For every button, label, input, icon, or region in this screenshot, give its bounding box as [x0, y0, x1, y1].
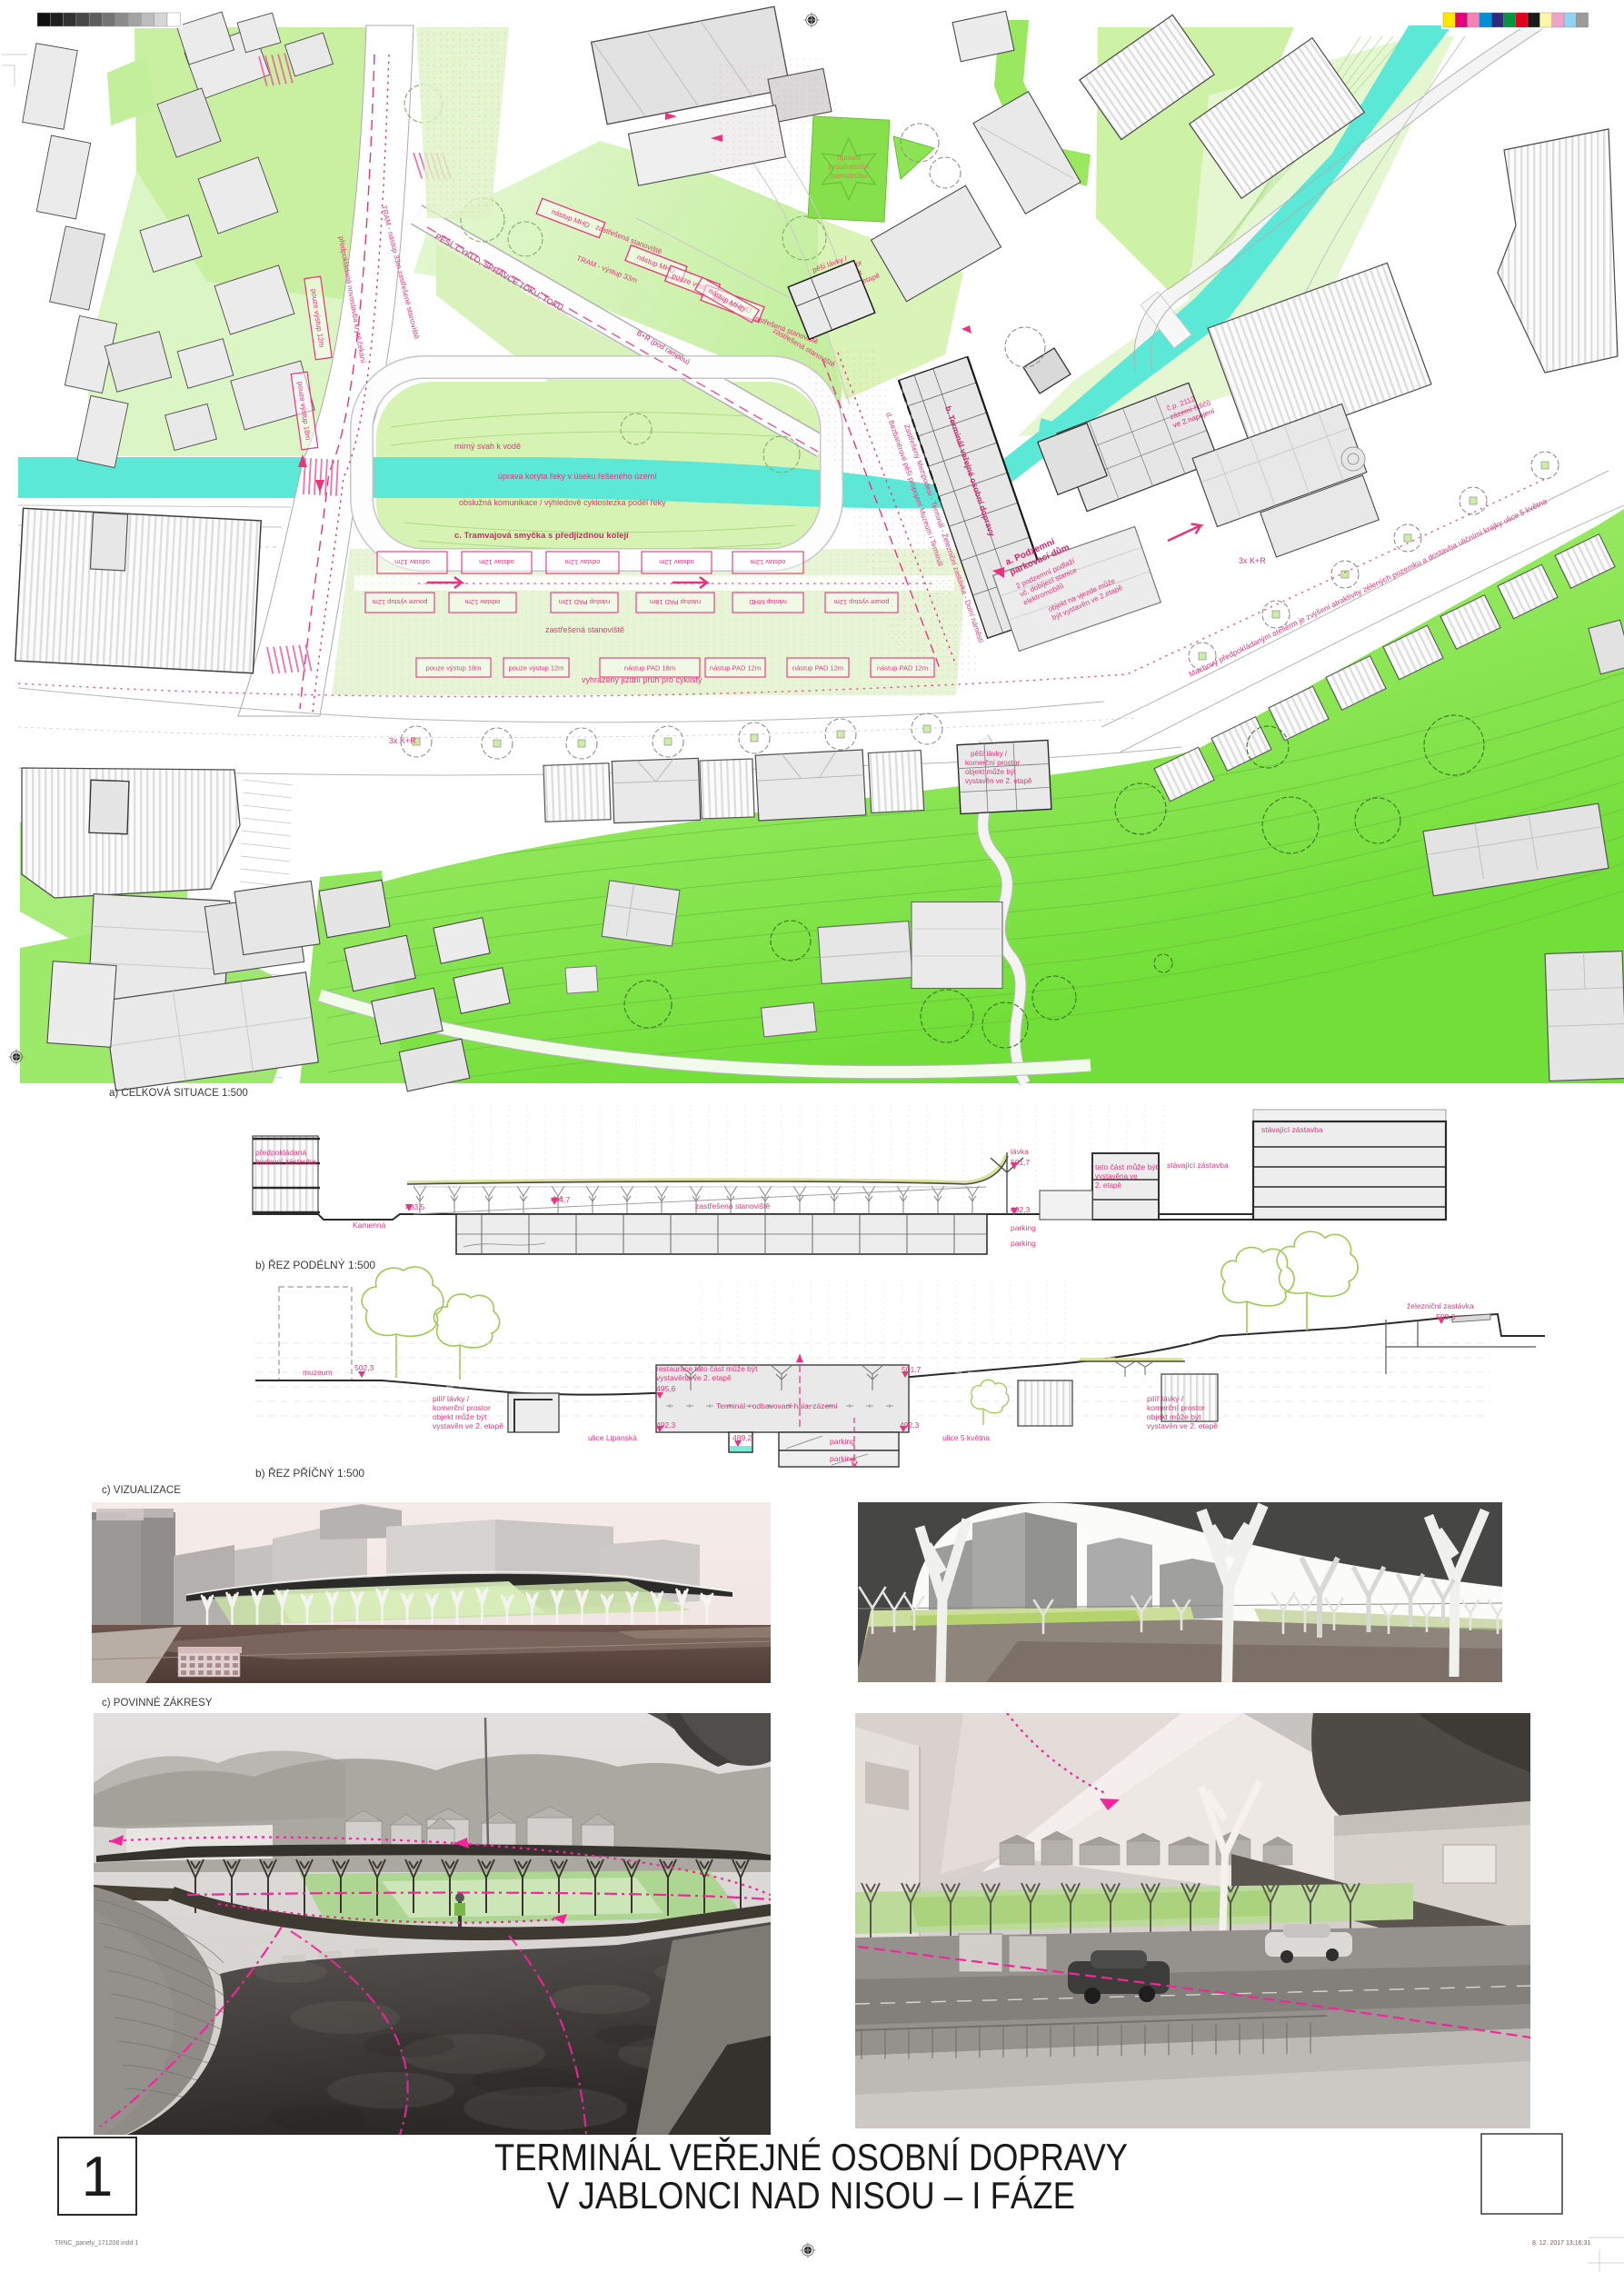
svg-text:parking: parking — [1011, 1223, 1036, 1232]
svg-text:ulice 5 května: ulice 5 května — [942, 1433, 990, 1442]
svg-text:3x K+R: 3x K+R — [389, 736, 416, 745]
svg-text:pouze výstup 12m: pouze výstup 12m — [509, 663, 564, 672]
svg-text:pilíř lávky /: pilíř lávky / — [433, 1394, 470, 1403]
svg-text:nástup PAD 18m: nástup PAD 18m — [624, 663, 675, 672]
svg-text:komerční prostor: komerční prostor — [1147, 1403, 1205, 1412]
svg-text:budoucí zástavba: budoucí zástavba — [255, 1157, 316, 1166]
svg-text:pouze výstup 12m: pouze výstup 12m — [373, 598, 428, 606]
svg-text:objekt může být: objekt může být — [433, 1412, 487, 1421]
svg-text:V JABLONCI NAD NISOU – I FÁZE: V JABLONCI NAD NISOU – I FÁZE — [547, 2174, 1075, 2217]
svg-text:objekt může být: objekt může být — [965, 768, 1017, 776]
svg-text:509,3: 509,3 — [1436, 1312, 1456, 1321]
svg-text:3x K+R: 3x K+R — [1239, 556, 1266, 565]
svg-text:památníku: památníku — [831, 171, 867, 180]
svg-text:odstav 12m: odstav 12m — [394, 558, 430, 566]
svg-text:komerční prostor: komerční prostor — [965, 759, 1020, 767]
svg-text:pilíř lávky /: pilíř lávky / — [1147, 1394, 1184, 1403]
svg-text:parking: parking — [830, 1437, 855, 1446]
svg-text:c) VIZUALIZACE: c) VIZUALIZACE — [102, 1485, 181, 1496]
svg-text:2. etapě: 2. etapě — [1095, 1181, 1121, 1190]
svg-text:odstav 12m: odstav 12m — [659, 558, 694, 566]
svg-text:vystavěna ve: vystavěna ve — [1095, 1172, 1138, 1181]
svg-text:úprava koryta řeky v úseku řeš: úprava koryta řeky v úseku řešeného územ… — [498, 472, 657, 481]
svg-text:úprava: úprava — [837, 153, 861, 162]
svg-text:odstav 12m: odstav 12m — [751, 558, 786, 566]
svg-text:odstav 12m: odstav 12m — [465, 598, 501, 606]
svg-text:zastřešená stanoviště: zastřešená stanoviště — [695, 1201, 770, 1211]
svg-text:vystavěn ve 2. etapě: vystavěn ve 2. etapě — [1147, 1421, 1218, 1430]
svg-text:nástup PAD 12m: nástup PAD 12m — [710, 663, 761, 672]
svg-text:c) POVINNÉ ZÁKRESY: c) POVINNÉ ZÁKRESY — [102, 1697, 213, 1709]
svg-text:odstav 12m: odstav 12m — [479, 558, 514, 566]
svg-text:vystavěn ve 2. etapě: vystavěn ve 2. etapě — [965, 777, 1032, 785]
svg-text:Terminál - odbavovací hala, zá: Terminál - odbavovací hala, zázemí — [716, 1401, 838, 1410]
svg-text:ulice Lipanská: ulice Lipanská — [588, 1433, 637, 1442]
svg-text:zastřešená stanoviště: zastřešená stanoviště — [545, 625, 624, 634]
svg-text:prostranství: prostranství — [829, 162, 870, 171]
svg-text:vystavěna ve 2. etapě: vystavěna ve 2. etapě — [656, 1373, 732, 1382]
svg-text:TRNC_panely_171208.indd 1: TRNC_panely_171208.indd 1 — [55, 2240, 138, 2247]
svg-text:8. 12. 2017 13:16:31: 8. 12. 2017 13:16:31 — [1532, 2240, 1590, 2247]
svg-text:parking: parking — [1011, 1239, 1036, 1248]
svg-text:lávka: lávka — [1011, 1147, 1029, 1156]
svg-text:stávající zástavba: stávající zástavba — [1261, 1125, 1323, 1134]
svg-text:Kamenná: Kamenná — [353, 1221, 386, 1230]
svg-text:pouze výstup 18m: pouze výstup 18m — [426, 663, 482, 672]
svg-text:pěší lávky /: pěší lávky / — [971, 750, 1008, 758]
svg-text:c. Tramvajová smyčka s předjíz: c. Tramvajová smyčka s předjízdnou kolej… — [454, 531, 629, 541]
svg-text:495,6: 495,6 — [656, 1384, 676, 1393]
svg-text:nástup PAD 18m: nástup PAD 18m — [650, 598, 701, 606]
svg-text:b) ŘEZ PODÉLNÝ 1:500: b) ŘEZ PODÉLNÝ 1:500 — [255, 1258, 375, 1271]
svg-text:tato část může být: tato část může být — [1095, 1162, 1159, 1171]
svg-text:vyhrazený jízdní pruh pro cykl: vyhrazený jízdní pruh pro cyklisty — [582, 675, 702, 684]
svg-text:TERMINÁL VEŘEJNÉ OSOBNÍ DOPRAV: TERMINÁL VEŘEJNÉ OSOBNÍ DOPRAVY — [494, 2136, 1128, 2178]
svg-text:nástup MHD: nástup MHD — [749, 598, 787, 606]
svg-text:restaurace tato část může být: restaurace tato část může být — [656, 1364, 758, 1373]
svg-text:obslužná komunikace / výhledov: obslužná komunikace / výhledově cykloste… — [459, 498, 666, 507]
svg-text:nástup PAD 12m: nástup PAD 12m — [559, 598, 610, 606]
svg-text:a) CELKOVÁ SITUACE 1:500: a) CELKOVÁ SITUACE 1:500 — [109, 1087, 248, 1099]
svg-text:mírný svah k vodě: mírný svah k vodě — [454, 442, 521, 451]
svg-text:502,3: 502,3 — [354, 1363, 374, 1372]
svg-text:vystavěn ve 2. etapě: vystavěn ve 2. etapě — [433, 1421, 503, 1430]
svg-text:odstav 12m: odstav 12m — [565, 558, 601, 566]
svg-text:parking: parking — [830, 1454, 855, 1463]
svg-text:předpokládaná: předpokládaná — [255, 1148, 307, 1157]
svg-text:muzeum: muzeum — [303, 1368, 333, 1377]
svg-text:železniční zastávka: železniční zastávka — [1407, 1301, 1474, 1310]
svg-text:nástup PAD 12m: nástup PAD 12m — [792, 663, 843, 672]
svg-text:objekt může být: objekt může být — [1147, 1412, 1201, 1421]
svg-text:1: 1 — [82, 2146, 113, 2208]
svg-text:stávající zástavba: stávající zástavba — [1167, 1161, 1229, 1170]
svg-text:b) ŘEZ PŘÍČNÝ 1:500: b) ŘEZ PŘÍČNÝ 1:500 — [255, 1466, 364, 1480]
svg-text:komerční prostor: komerční prostor — [433, 1403, 491, 1412]
